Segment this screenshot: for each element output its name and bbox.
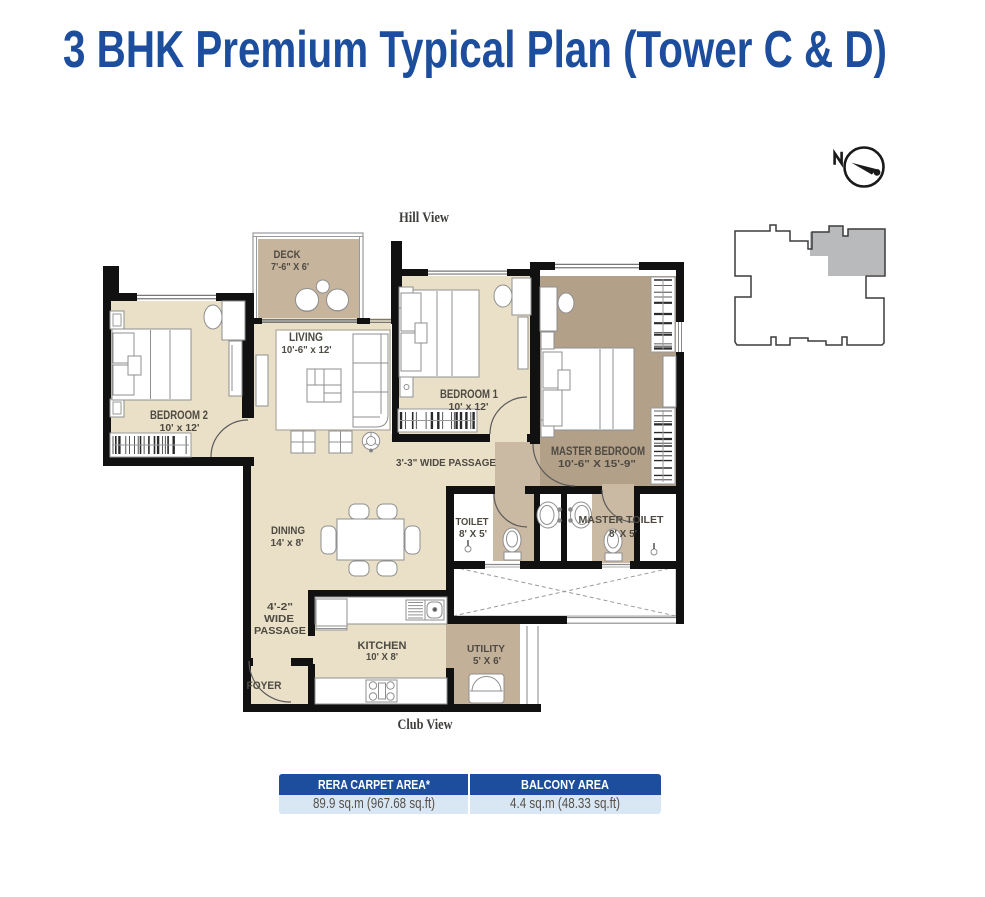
svg-text:MASTER TOILET: MASTER TOILET: [579, 514, 665, 526]
svg-text:LIVING: LIVING: [289, 332, 323, 344]
svg-text:4'-2": 4'-2": [267, 601, 293, 613]
svg-text:10'-6" X 15'-9": 10'-6" X 15'-9": [558, 458, 636, 470]
svg-text:Club View: Club View: [398, 717, 453, 733]
svg-text:UTILITY: UTILITY: [467, 643, 505, 655]
svg-text:TOILET: TOILET: [456, 516, 490, 528]
svg-text:FOYER: FOYER: [247, 680, 282, 692]
svg-text:BEDROOM 1: BEDROOM 1: [440, 389, 498, 401]
svg-text:DECK: DECK: [274, 249, 301, 261]
svg-text:10' x 12': 10' x 12': [160, 422, 200, 434]
svg-text:RERA CARPET AREA*: RERA CARPET AREA*: [318, 777, 431, 792]
svg-text:8' X 5': 8' X 5': [609, 529, 637, 540]
svg-text:10'-6" x 12': 10'-6" x 12': [282, 344, 332, 356]
svg-text:MASTER BEDROOM: MASTER BEDROOM: [551, 446, 645, 458]
svg-text:3'-3" WIDE PASSAGE: 3'-3" WIDE PASSAGE: [396, 457, 496, 469]
svg-text:89.9 sq.m (967.68 sq.ft): 89.9 sq.m (967.68 sq.ft): [313, 796, 435, 812]
svg-text:8' X 5': 8' X 5': [459, 529, 487, 540]
svg-text:4.4 sq.m (48.33 sq.ft): 4.4 sq.m (48.33 sq.ft): [510, 796, 620, 812]
svg-text:BEDROOM 2: BEDROOM 2: [150, 410, 208, 422]
svg-text:10' X 8': 10' X 8': [366, 652, 398, 663]
svg-text:3 BHK Premium Typical Plan (To: 3 BHK Premium Typical Plan (Tower C & D): [63, 21, 887, 79]
svg-text:WIDE: WIDE: [264, 613, 294, 625]
svg-text:Hill View: Hill View: [399, 210, 449, 226]
svg-text:BALCONY AREA: BALCONY AREA: [521, 777, 610, 792]
svg-text:PASSAGE: PASSAGE: [254, 625, 306, 637]
svg-text:5' X 6': 5' X 6': [473, 656, 501, 667]
svg-text:7'-6" X 6': 7'-6" X 6': [271, 261, 309, 273]
svg-text:DINING: DINING: [271, 525, 305, 537]
svg-text:14' x 8': 14' x 8': [271, 538, 304, 549]
svg-text:KITCHEN: KITCHEN: [358, 640, 407, 652]
svg-text:10' x 12': 10' x 12': [449, 401, 489, 413]
